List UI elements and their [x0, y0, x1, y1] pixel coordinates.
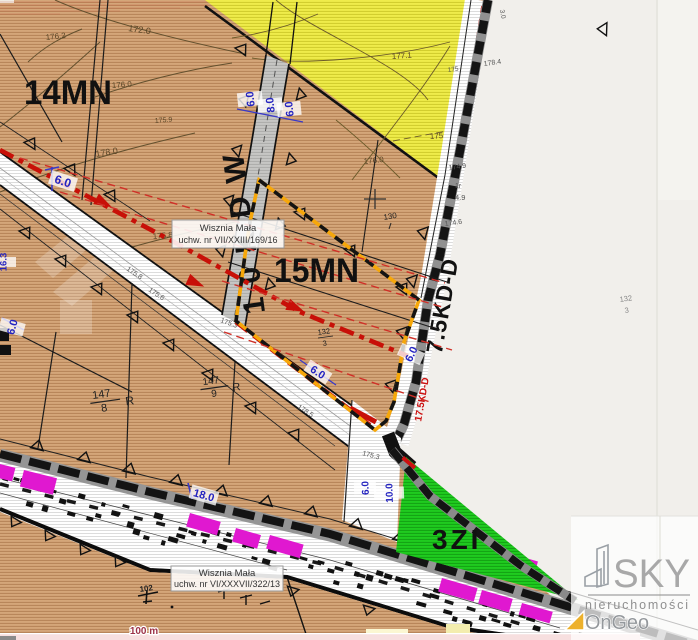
svg-text:6.0: 6.0: [360, 480, 371, 495]
svg-text:176.0: 176.0: [112, 80, 133, 90]
svg-text:6.0: 6.0: [244, 91, 258, 107]
svg-text:14MN: 14MN: [24, 74, 112, 112]
svg-text:177.1: 177.1: [392, 51, 413, 61]
svg-text:100 m: 100 m: [130, 626, 158, 637]
svg-text:SKY: SKY: [613, 552, 690, 596]
svg-text:8.0: 8.0: [264, 97, 278, 113]
svg-text:uchw. nr VII/XXIII/169/16: uchw. nr VII/XXIII/169/16: [178, 235, 277, 245]
svg-text:Wisznia Mała: Wisznia Mała: [200, 223, 257, 234]
svg-text:147: 147: [92, 388, 112, 402]
svg-text:132: 132: [317, 326, 331, 337]
svg-text:16.3: 16.3: [0, 253, 9, 272]
svg-text:Wisznia Mała: Wisznia Mała: [199, 568, 256, 579]
svg-text:4.9: 4.9: [455, 193, 465, 202]
svg-text:1r: 1r: [455, 183, 462, 190]
svg-text:OnGeo: OnGeo: [585, 611, 649, 634]
svg-text:102: 102: [139, 583, 154, 594]
svg-text:uchw. nr VI/XXXVII/322/13: uchw. nr VI/XXXVII/322/13: [174, 579, 280, 589]
svg-text:10.0: 10.0: [384, 483, 396, 503]
svg-text:nieruchomości: nieruchomości: [585, 598, 688, 612]
svg-text:3ZI: 3ZI: [432, 524, 481, 555]
svg-text:6.0: 6.0: [283, 101, 297, 117]
svg-text:15MN: 15MN: [274, 252, 359, 290]
svg-text:132: 132: [619, 293, 633, 304]
